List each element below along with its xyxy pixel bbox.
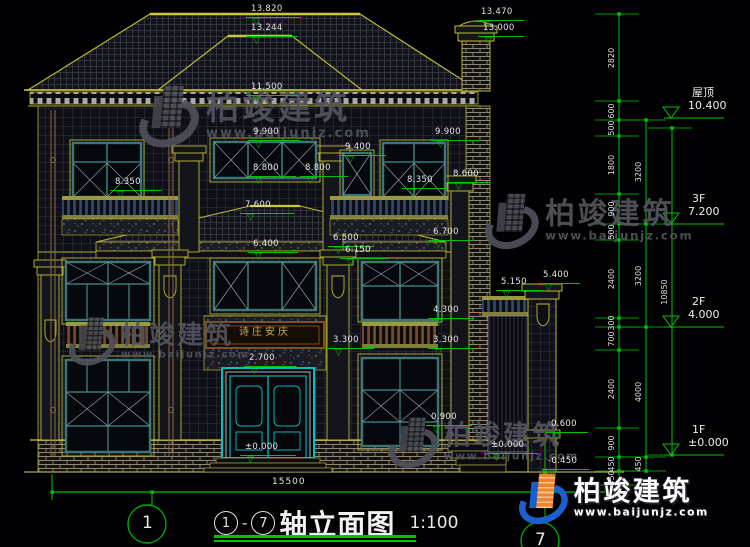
elevation-mark-value: 8.800 <box>305 164 331 173</box>
elevation-mark-value: 9.400 <box>345 143 371 152</box>
level-triangle-icon: ▽ <box>117 191 124 200</box>
title-underline-2 <box>214 540 416 542</box>
level-triangle-icon: ▽ <box>307 177 314 186</box>
level-triangle-icon: ▽ <box>251 367 258 376</box>
elevation-mark-value: 9.900 <box>253 128 279 137</box>
elevation-mark-value: 13.000 <box>483 24 515 33</box>
chain-dim-label: 10850 <box>661 279 669 304</box>
elevation-mark-value: 8.350 <box>115 178 141 187</box>
level-triangle-icon: ▽ <box>335 247 342 256</box>
chain-dim-label: 900 <box>608 435 616 450</box>
elevation-mark-value: 8.800 <box>253 164 279 173</box>
chain-dim-label: 2400 <box>608 379 616 399</box>
title-axis-to: 7 <box>251 511 275 535</box>
chain-dim-label: 4000 <box>635 382 643 402</box>
level-triangle-icon: ▽ <box>247 456 254 465</box>
elevation-mark-value: 13.470 <box>481 8 513 17</box>
chain-dim-label: 600 <box>608 103 616 118</box>
chain-dim-label: 500 <box>608 120 616 135</box>
elevation-mark-value: 2.700 <box>249 354 275 363</box>
elevation-mark-value: 7.600 <box>245 201 271 210</box>
level-triangle-icon: ▽ <box>485 37 492 46</box>
chain-dim-label: 700 <box>608 331 616 346</box>
elevation-mark-value: 0.600 <box>551 420 577 429</box>
storey-level-name: 屋顶 <box>692 87 714 98</box>
elevation-mark-value: 5.400 <box>543 271 569 280</box>
elevation-mark-value: 3.300 <box>333 336 359 345</box>
cad-canvas: 柏竣建筑 www.baijunjz.com 柏竣建筑 www.baijunjz.… <box>0 0 750 547</box>
storey-level-value: 10.400 <box>688 100 727 111</box>
chain-dim-label: 900 <box>608 201 616 216</box>
elevation-mark-value: 6.150 <box>345 246 371 255</box>
chain-dim-label: 2820 <box>608 47 616 67</box>
elevation-mark-value: 8.600 <box>453 170 479 179</box>
level-triangle-icon: ▽ <box>553 433 560 442</box>
axis-bubble-7: 7 <box>535 532 546 547</box>
level-triangle-icon: ▽ <box>409 189 416 198</box>
annotation-layer: 诗庄安庆 15500 1 7 1 - 7 轴立面图 1:100 28206005… <box>0 0 750 547</box>
elevation-mark-value: 6.500 <box>333 234 359 243</box>
chain-dim-label: 2400 <box>608 269 616 289</box>
level-triangle-icon: ▽ <box>435 349 442 358</box>
elevation-mark-value: -0.450 <box>548 457 577 466</box>
elevation-mark-value: 8.350 <box>407 176 433 185</box>
level-triangle-icon: ▽ <box>255 253 262 262</box>
axis-bubble-1: 1 <box>142 515 153 532</box>
storey-level-value: 7.200 <box>688 206 720 217</box>
level-triangle-icon: ▽ <box>255 141 262 150</box>
elevation-mark-value: 0.900 <box>431 413 457 422</box>
chain-dim-label: 3200 <box>635 162 643 182</box>
storey-level-value: 4.000 <box>688 309 720 320</box>
title-scale: 1:100 <box>409 513 458 533</box>
elevation-mark-value: 13.244 <box>251 24 283 33</box>
chain-dim-label: 450 <box>635 456 643 471</box>
chain-dim-label: 300 <box>608 315 616 330</box>
level-triangle-icon: ▽ <box>335 349 342 358</box>
level-triangle-icon: ▽ <box>437 141 444 150</box>
elevation-mark-value: 6.400 <box>253 240 279 249</box>
elevation-mark-value: ±0.000 <box>245 443 278 452</box>
elevation-mark-value: ±0.000 <box>491 441 524 450</box>
storey-level-name: 3F <box>692 193 705 204</box>
chain-dim-label: 450 <box>608 470 616 485</box>
level-triangle-icon: ▽ <box>433 426 440 435</box>
level-triangle-icon: ▽ <box>545 284 552 293</box>
overall-width-dimension: 15500 <box>272 477 306 487</box>
elevation-mark-value: 4.300 <box>433 306 459 315</box>
storey-level-name: 1F <box>692 424 705 435</box>
elevation-mark-value: 9.900 <box>435 128 461 137</box>
level-triangle-icon: ▽ <box>255 177 262 186</box>
level-triangle-icon: ▽ <box>435 319 442 328</box>
title-axis-from: 1 <box>214 511 238 535</box>
storey-level-name: 2F <box>692 296 705 307</box>
elevation-mark-value: 13.820 <box>251 5 283 14</box>
elevation-mark-value: 6.700 <box>433 228 459 237</box>
chain-dim-label: 450 <box>608 456 616 471</box>
chain-dim-label: 500 <box>608 224 616 239</box>
level-triangle-icon: ▽ <box>253 96 260 105</box>
chain-dim-label: 3200 <box>635 265 643 285</box>
level-triangle-icon: ▽ <box>550 470 557 479</box>
storey-level-value: ±0.000 <box>688 437 729 448</box>
title-separator: - <box>242 514 247 532</box>
level-triangle-icon: ▽ <box>435 241 442 250</box>
level-triangle-icon: ▽ <box>493 454 500 463</box>
elevation-mark-value: 5.150 <box>501 278 527 287</box>
level-triangle-icon: ▽ <box>347 259 354 268</box>
level-triangle-icon: ▽ <box>247 214 254 223</box>
level-triangle-icon: ▽ <box>503 291 510 300</box>
entrance-plaque: 诗庄安庆 <box>206 328 324 338</box>
elevation-mark-value: 3.300 <box>433 336 459 345</box>
level-triangle-icon: ▽ <box>455 183 462 192</box>
level-triangle-icon: ▽ <box>347 156 354 165</box>
elevation-mark-value: 11.500 <box>251 83 283 92</box>
title-underline <box>214 535 416 538</box>
chain-dim-label: 1800 <box>608 155 616 175</box>
level-triangle-icon: ▽ <box>253 37 260 46</box>
